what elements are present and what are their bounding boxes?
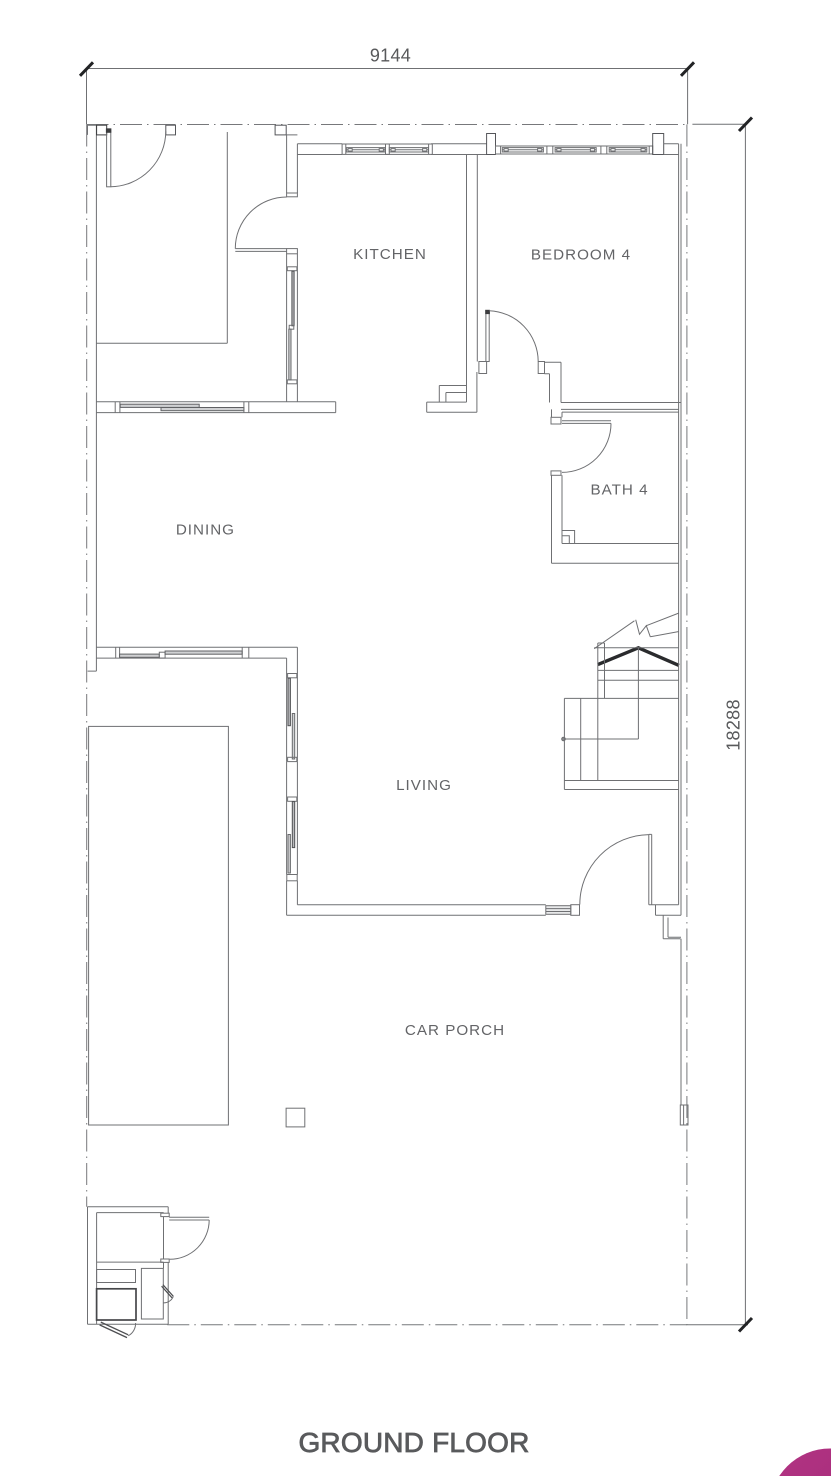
svg-text:CAR PORCH: CAR PORCH — [405, 1022, 505, 1039]
svg-text:BATH 4: BATH 4 — [590, 482, 648, 499]
svg-text:9144: 9144 — [370, 46, 411, 66]
svg-text:LIVING: LIVING — [396, 777, 452, 794]
svg-text:GROUND FLOOR: GROUND FLOOR — [298, 1427, 529, 1458]
svg-text:DINING: DINING — [176, 522, 235, 539]
svg-text:BEDROOM 4: BEDROOM 4 — [531, 247, 631, 264]
svg-text:18288: 18288 — [724, 699, 744, 751]
svg-text:KITCHEN: KITCHEN — [353, 246, 427, 263]
